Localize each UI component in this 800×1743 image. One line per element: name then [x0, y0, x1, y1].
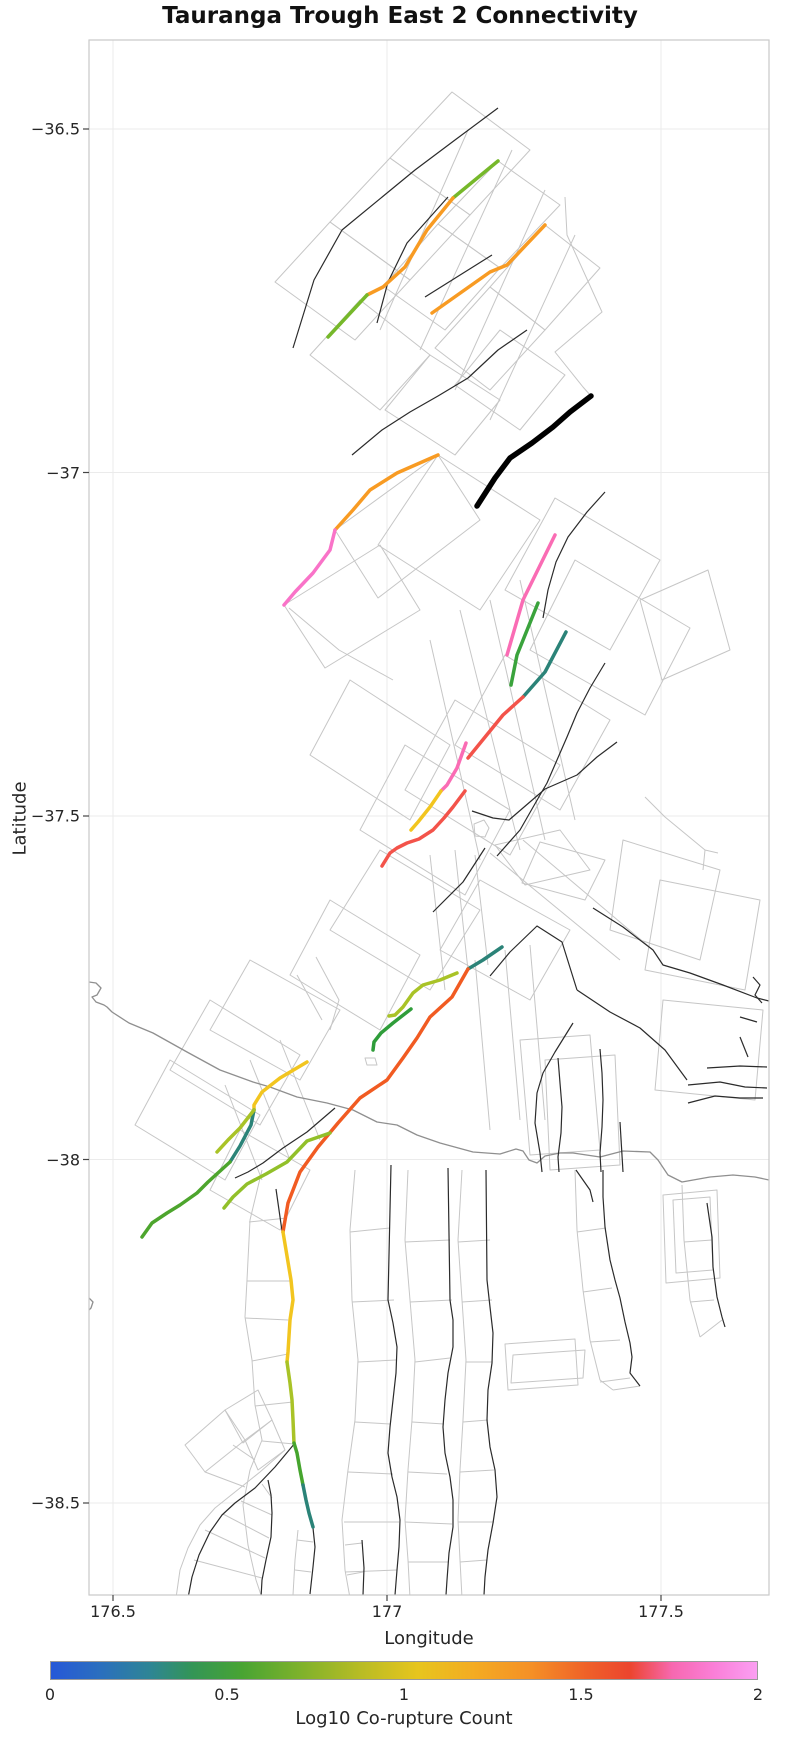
fault-surface-line-path [347, 1572, 363, 1575]
map-canvas [0, 0, 800, 1743]
fault-surface-line-path [460, 1560, 487, 1562]
colorbar-tick-labels: 00.511.52 [0, 1685, 800, 1705]
fault-surface-line-path [684, 1240, 712, 1242]
fault-surface-line-path [415, 1358, 450, 1362]
fault-surface-outline-path [335, 455, 480, 598]
corupture-segment [283, 969, 468, 1232]
fault-trace-path [443, 1168, 453, 1595]
fault-surface-line-path [420, 150, 512, 350]
fault-surface-outline-path [610, 840, 720, 960]
fault-surface-outline-path [378, 455, 540, 610]
fault-surface-line-path [252, 1354, 288, 1361]
colorbar-tick-label: 1.5 [568, 1685, 593, 1704]
corupture-segment [142, 1162, 230, 1237]
fault-surface-line-path [682, 1185, 700, 1337]
fault-surface-line-path [577, 1228, 606, 1232]
fault-trace-path [276, 1189, 282, 1231]
corupture-segment [284, 530, 335, 605]
fault-surface-line-path [350, 1228, 390, 1232]
fault-surface-line-path [412, 1422, 444, 1424]
fault-surface-line-path [289, 608, 393, 680]
fault-surface-line [176, 130, 722, 1598]
fault-surface-line-path [645, 797, 718, 853]
x-axis-tick-labels: 176.5177177.5 [0, 1602, 800, 1622]
fault-surface-line-path [575, 1170, 613, 1390]
fault-surface-line-path [408, 1472, 447, 1474]
fault-surface-line-path [358, 1360, 396, 1362]
colorbar-tick-label: 0 [45, 1685, 55, 1704]
fault-surface-line-path [355, 1422, 390, 1424]
fault-surface-line-path [233, 1445, 255, 1460]
fault-surface-line-path [458, 1240, 490, 1242]
fault-surface-line-path [223, 1514, 269, 1538]
fault-surface-outline-path [330, 158, 470, 280]
fault-surface-outline-path [438, 161, 560, 268]
fault-surface-line-path [295, 1570, 311, 1572]
fault-surface-outline-path [170, 1000, 300, 1125]
fault-surface-line-path [455, 190, 545, 390]
fault-surface-outline-path [310, 680, 450, 820]
colorbar-label: Log10 Co-rupture Count [50, 1708, 758, 1729]
fault-surface-line-path [703, 850, 705, 870]
corupture-segment [294, 1443, 303, 1485]
x-tick-label: 177.5 [638, 1602, 684, 1621]
fault-surface-line-path [600, 1378, 630, 1382]
fault-surface-outline-path [284, 545, 420, 668]
fault-trace-path [603, 1170, 640, 1386]
gridlines [89, 40, 769, 1595]
fault-surface-line-path [700, 1320, 722, 1337]
fault-surface-line-path [590, 1340, 620, 1342]
colorbar-tick-label: 1 [399, 1685, 409, 1704]
y-tick-label: −36.5 [0, 120, 80, 139]
fault-surface-line-path [345, 1570, 397, 1572]
fault-surface-line-path [475, 960, 490, 1130]
fault-trace-path [600, 1049, 603, 1172]
fault-surface-outline-path [455, 330, 565, 430]
colorbar-tick-label: 0.5 [214, 1685, 239, 1704]
fault-surface-line-path [613, 1386, 640, 1390]
y-tick-label: −38.5 [0, 1494, 80, 1513]
fault-surface-line-path [458, 1170, 466, 1598]
fault-surface-outline-path [385, 355, 500, 455]
plot-border [89, 40, 769, 1595]
fault-surface-line-path [475, 855, 488, 965]
fault-surface-outline-path [522, 842, 605, 900]
fault-trace-path [740, 1017, 757, 1022]
fault-surface-line-path [205, 1530, 265, 1558]
fault-surface-line-path [405, 1240, 450, 1242]
fault-surface-line-path [583, 1288, 612, 1292]
fault-surface-line-path [345, 1543, 362, 1545]
fault-surface-line-path [430, 855, 445, 990]
fault-surface-line-path [245, 1318, 288, 1320]
fault-surface-outline-path [530, 560, 690, 715]
x-tick-label: 177 [372, 1602, 403, 1621]
coastline-path [89, 982, 769, 1182]
fault-surface-outline-path [511, 1350, 585, 1383]
fault-surface-line-path [243, 1170, 262, 1598]
fault-trace-path [310, 1528, 315, 1594]
fault-surface-line-path [405, 1170, 415, 1598]
fault-surface-line-path [410, 1300, 452, 1302]
fault-surface-outline-path [185, 1410, 245, 1472]
fault-surface-line-path [490, 235, 575, 420]
fault-surface-line-path [255, 1402, 293, 1406]
fault-trace-path [740, 1037, 748, 1057]
y-tick-label: −38 [0, 1150, 80, 1169]
fault-surface-line-path [405, 1522, 452, 1524]
fault-surface-line-path [262, 1441, 294, 1444]
fault-surface-line-path [205, 1472, 245, 1487]
fault-trace-path [577, 990, 687, 1080]
fault-surface-line-path [249, 1218, 287, 1222]
fault-trace-path [484, 1170, 497, 1595]
fault-surface-line-path [555, 197, 602, 396]
y-tick-label: −37 [0, 463, 80, 482]
corupture-segment [283, 1232, 293, 1362]
fault-trace-path [352, 330, 527, 455]
fault-surface-outline-path [360, 745, 510, 895]
fault-trace-path [472, 742, 617, 820]
corupture-segment [382, 791, 465, 866]
fault-surface-outline-path [490, 225, 600, 330]
corupture-segment [468, 947, 502, 969]
map-layers [89, 92, 769, 1598]
fault-surface-outline-path [390, 92, 530, 215]
corupture-segment [328, 295, 367, 337]
fault-surface-line-path [348, 1472, 393, 1474]
fault-trace-path [362, 1540, 364, 1595]
fault-surface-line-path [342, 1170, 358, 1598]
fault-surface-outline-path [435, 287, 545, 390]
fault-trace-path [388, 1165, 400, 1595]
fault-surface-line-path [463, 1420, 488, 1422]
fault-trace-path [688, 1082, 767, 1088]
fault-trace-path [707, 1203, 725, 1327]
fault-surface-outline-path [225, 1390, 272, 1443]
fault-trace-path [558, 1058, 562, 1172]
corupture-segment [303, 1485, 313, 1527]
colorbar [50, 1661, 758, 1680]
fault-surface-line-path [462, 1300, 492, 1302]
fault-surface-outline-path [210, 960, 340, 1080]
fault-surface-line-path [505, 950, 520, 1120]
fault-surface-outline-path [655, 1000, 763, 1100]
fault-trace-path [576, 1170, 593, 1202]
fault-surface-line-path [297, 1540, 313, 1542]
fault-surface-line-path [455, 850, 468, 970]
fault-surface-outline-path [310, 300, 430, 410]
x-tick-label: 176.5 [90, 1602, 136, 1621]
fault-trace-path [543, 492, 605, 618]
y-axis-label: Latitude [10, 739, 31, 899]
coastline [89, 982, 769, 1310]
fault-surface-line-path [460, 1470, 494, 1472]
fault-surface-outline-path [495, 830, 590, 885]
fault-trace-path [535, 1023, 573, 1172]
x-axis-label: Longitude [89, 1628, 769, 1649]
fault-trace-path [261, 1480, 272, 1598]
fault-surface-line-path [690, 1300, 714, 1302]
colorbar-tick-label: 2 [753, 1685, 763, 1704]
fault-surface-outline-path [645, 880, 760, 990]
fault-surface-outline-path [673, 1197, 713, 1273]
fault-surface-outline-path [365, 1058, 377, 1065]
axis-tick-marks [83, 129, 661, 1601]
